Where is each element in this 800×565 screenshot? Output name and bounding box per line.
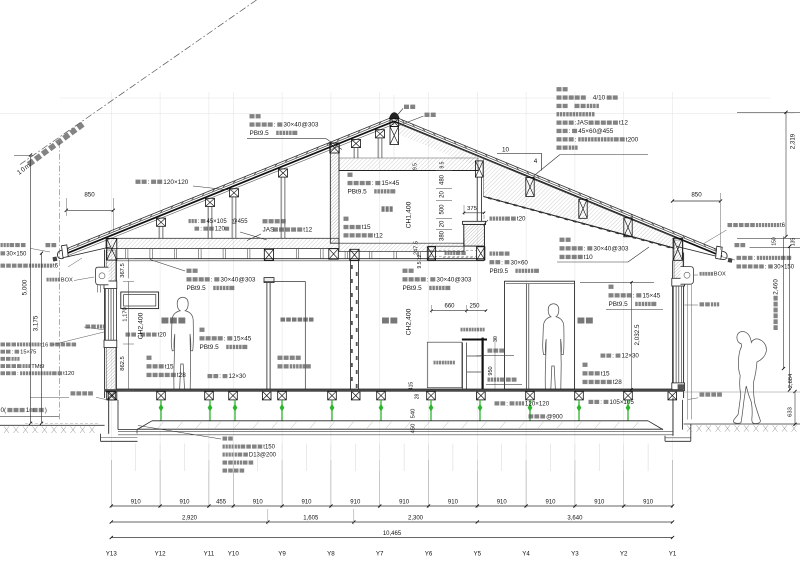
svg-text::: : bbox=[211, 276, 213, 283]
svg-text:2,300: 2,300 bbox=[408, 515, 424, 521]
svg-text:9.5 12: 9.5 12 bbox=[417, 254, 423, 268]
svg-text:PBt9.5: PBt9.5 bbox=[187, 285, 207, 292]
svg-text:455: 455 bbox=[216, 499, 227, 505]
svg-text:CH2,400: CH2,400 bbox=[138, 312, 145, 339]
svg-text:JAS: JAS bbox=[263, 227, 275, 234]
svg-text:850: 850 bbox=[691, 192, 702, 199]
svg-text:367.5: 367.5 bbox=[120, 263, 126, 278]
svg-text:30×150: 30×150 bbox=[774, 264, 795, 270]
svg-text:CH1,400: CH1,400 bbox=[406, 201, 413, 228]
svg-text:BOX: BOX bbox=[714, 272, 726, 278]
svg-text:PBt9.5: PBt9.5 bbox=[250, 130, 270, 137]
svg-text:910: 910 bbox=[253, 499, 264, 505]
svg-text::: : bbox=[372, 180, 374, 187]
svg-text:2,319: 2,319 bbox=[790, 133, 797, 149]
svg-text:135: 135 bbox=[790, 238, 796, 247]
svg-text:540: 540 bbox=[411, 409, 417, 419]
svg-text:30×40@303: 30×40@303 bbox=[436, 276, 472, 283]
svg-text::: : bbox=[612, 353, 614, 360]
svg-text:2,460: 2,460 bbox=[773, 279, 780, 295]
svg-text:380: 380 bbox=[440, 230, 446, 241]
svg-text:30×40@303: 30×40@303 bbox=[220, 276, 256, 283]
svg-text:t6: t6 bbox=[780, 223, 786, 229]
svg-text:12×30: 12×30 bbox=[229, 373, 247, 380]
svg-text:2,684: 2,684 bbox=[788, 373, 794, 388]
svg-text:910: 910 bbox=[399, 499, 410, 505]
svg-text:30×60: 30×60 bbox=[511, 259, 529, 266]
svg-text:3,175: 3,175 bbox=[33, 315, 40, 331]
svg-text:Y4: Y4 bbox=[522, 551, 530, 558]
svg-text:Y1: Y1 bbox=[669, 551, 677, 558]
svg-text:20: 20 bbox=[440, 191, 446, 198]
svg-text:2,032.5: 2,032.5 bbox=[634, 324, 641, 346]
svg-text:t28: t28 bbox=[177, 372, 186, 379]
svg-text:t20: t20 bbox=[517, 216, 526, 223]
svg-text:3,640: 3,640 bbox=[567, 515, 583, 521]
svg-text:PBt9.5: PBt9.5 bbox=[490, 268, 509, 275]
svg-text::: : bbox=[506, 401, 508, 408]
svg-text:Y9: Y9 bbox=[278, 551, 286, 558]
svg-text:t20: t20 bbox=[158, 332, 167, 339]
svg-text::: : bbox=[600, 399, 602, 406]
svg-text:4/10: 4/10 bbox=[593, 95, 606, 102]
svg-text:30: 30 bbox=[493, 336, 499, 342]
svg-text:Y3: Y3 bbox=[571, 551, 579, 558]
svg-text:1,170: 1,170 bbox=[123, 307, 129, 322]
svg-text:45×105: 45×105 bbox=[207, 219, 228, 225]
svg-text:CH2,400: CH2,400 bbox=[406, 308, 413, 335]
svg-text:10: 10 bbox=[502, 147, 510, 154]
svg-text:t12: t12 bbox=[303, 227, 312, 234]
svg-text:910: 910 bbox=[448, 499, 459, 505]
svg-text::: : bbox=[274, 122, 276, 129]
svg-text:Y8: Y8 bbox=[327, 551, 335, 558]
svg-text::: : bbox=[584, 245, 586, 252]
svg-text:850: 850 bbox=[84, 192, 95, 199]
svg-text:2,920: 2,920 bbox=[182, 515, 198, 521]
svg-text:15×45: 15×45 bbox=[642, 292, 660, 299]
svg-text:9.5: 9.5 bbox=[413, 163, 419, 170]
svg-text:247.5: 247.5 bbox=[414, 241, 420, 255]
svg-text:TMt9: TMt9 bbox=[31, 364, 44, 370]
svg-text:PBt9.5: PBt9.5 bbox=[200, 344, 220, 351]
svg-text:PBt9.5: PBt9.5 bbox=[609, 301, 629, 308]
svg-text:Y10: Y10 bbox=[228, 551, 240, 558]
svg-text:t15: t15 bbox=[165, 363, 174, 370]
svg-text:10,465: 10,465 bbox=[383, 531, 402, 537]
svg-text:120×120: 120×120 bbox=[525, 401, 550, 408]
svg-text:45×60@455: 45×60@455 bbox=[578, 128, 614, 135]
svg-text:910: 910 bbox=[545, 499, 556, 505]
svg-text:633: 633 bbox=[788, 407, 794, 417]
svg-text::JAS: :JAS bbox=[575, 120, 589, 127]
svg-text:30×150: 30×150 bbox=[6, 251, 27, 257]
svg-text:1,605: 1,605 bbox=[303, 515, 319, 521]
svg-text:120×120: 120×120 bbox=[163, 179, 189, 186]
svg-text::: : bbox=[224, 335, 226, 342]
svg-text:910: 910 bbox=[350, 499, 361, 505]
svg-text::: : bbox=[427, 276, 429, 283]
svg-text:0(: 0( bbox=[1, 407, 8, 414]
svg-text:12×30: 12×30 bbox=[622, 353, 640, 360]
svg-text:Y13: Y13 bbox=[106, 551, 118, 558]
svg-text:415: 415 bbox=[409, 382, 415, 391]
svg-text:Y6: Y6 bbox=[425, 551, 433, 558]
svg-text:t12: t12 bbox=[374, 232, 383, 239]
svg-text:t15: t15 bbox=[362, 224, 371, 231]
svg-text:120: 120 bbox=[215, 227, 226, 233]
svg-text:t15: t15 bbox=[601, 370, 610, 377]
svg-text:480: 480 bbox=[440, 174, 446, 185]
svg-text:450: 450 bbox=[411, 424, 417, 434]
svg-text:Y2: Y2 bbox=[620, 551, 628, 558]
svg-text:t6: t6 bbox=[53, 264, 59, 270]
svg-text::: : bbox=[219, 373, 221, 380]
svg-text:BOX: BOX bbox=[61, 278, 73, 284]
svg-text:20: 20 bbox=[440, 220, 446, 227]
svg-text::: : bbox=[633, 292, 635, 299]
svg-text:30×40@303: 30×40@303 bbox=[283, 122, 319, 129]
svg-text:15×45: 15×45 bbox=[233, 335, 251, 342]
svg-text:@900: @900 bbox=[546, 414, 563, 421]
svg-text:Y12: Y12 bbox=[155, 551, 167, 558]
svg-text:150: 150 bbox=[772, 237, 778, 246]
svg-text:t120: t120 bbox=[63, 371, 74, 377]
svg-text:660: 660 bbox=[444, 304, 455, 310]
svg-text::: : bbox=[569, 128, 571, 135]
svg-text:PBt9.5: PBt9.5 bbox=[403, 285, 423, 292]
svg-text:910: 910 bbox=[131, 499, 142, 505]
svg-text:910: 910 bbox=[497, 499, 508, 505]
svg-text:910: 910 bbox=[643, 499, 654, 505]
svg-text:375: 375 bbox=[467, 206, 477, 212]
svg-text::: : bbox=[501, 259, 503, 266]
svg-text:250: 250 bbox=[469, 304, 480, 310]
svg-text:28: 28 bbox=[415, 394, 421, 400]
svg-text:15×75: 15×75 bbox=[20, 350, 36, 356]
svg-text:Y7: Y7 bbox=[376, 551, 384, 558]
svg-text:@455: @455 bbox=[232, 219, 249, 225]
svg-text:t28: t28 bbox=[613, 379, 622, 386]
svg-text:105×105: 105×105 bbox=[610, 399, 635, 406]
svg-text:Y11: Y11 bbox=[204, 551, 215, 558]
svg-text:t200: t200 bbox=[626, 136, 639, 143]
svg-text:9.5: 9.5 bbox=[440, 161, 446, 168]
svg-text:PBt9.5: PBt9.5 bbox=[348, 188, 368, 195]
svg-text:5,000: 5,000 bbox=[22, 279, 29, 295]
svg-text::: : bbox=[575, 136, 577, 143]
svg-text:4: 4 bbox=[534, 158, 538, 165]
svg-text:): ) bbox=[45, 407, 47, 414]
svg-text:30×40@303: 30×40@303 bbox=[593, 245, 629, 252]
svg-text:D13@200: D13@200 bbox=[249, 453, 277, 459]
svg-text:t10: t10 bbox=[584, 254, 593, 261]
svg-text:910: 910 bbox=[301, 499, 312, 505]
svg-text:910: 910 bbox=[179, 499, 190, 505]
svg-text:15×45: 15×45 bbox=[381, 180, 399, 187]
svg-text:910: 910 bbox=[594, 499, 605, 505]
svg-text::: : bbox=[148, 179, 150, 186]
svg-text:500: 500 bbox=[440, 204, 446, 215]
svg-text:950: 950 bbox=[488, 366, 494, 375]
svg-text:862.5: 862.5 bbox=[120, 356, 126, 371]
svg-text:t150: t150 bbox=[263, 445, 275, 451]
svg-text:Y5: Y5 bbox=[474, 551, 482, 558]
svg-text:t12: t12 bbox=[619, 120, 628, 127]
